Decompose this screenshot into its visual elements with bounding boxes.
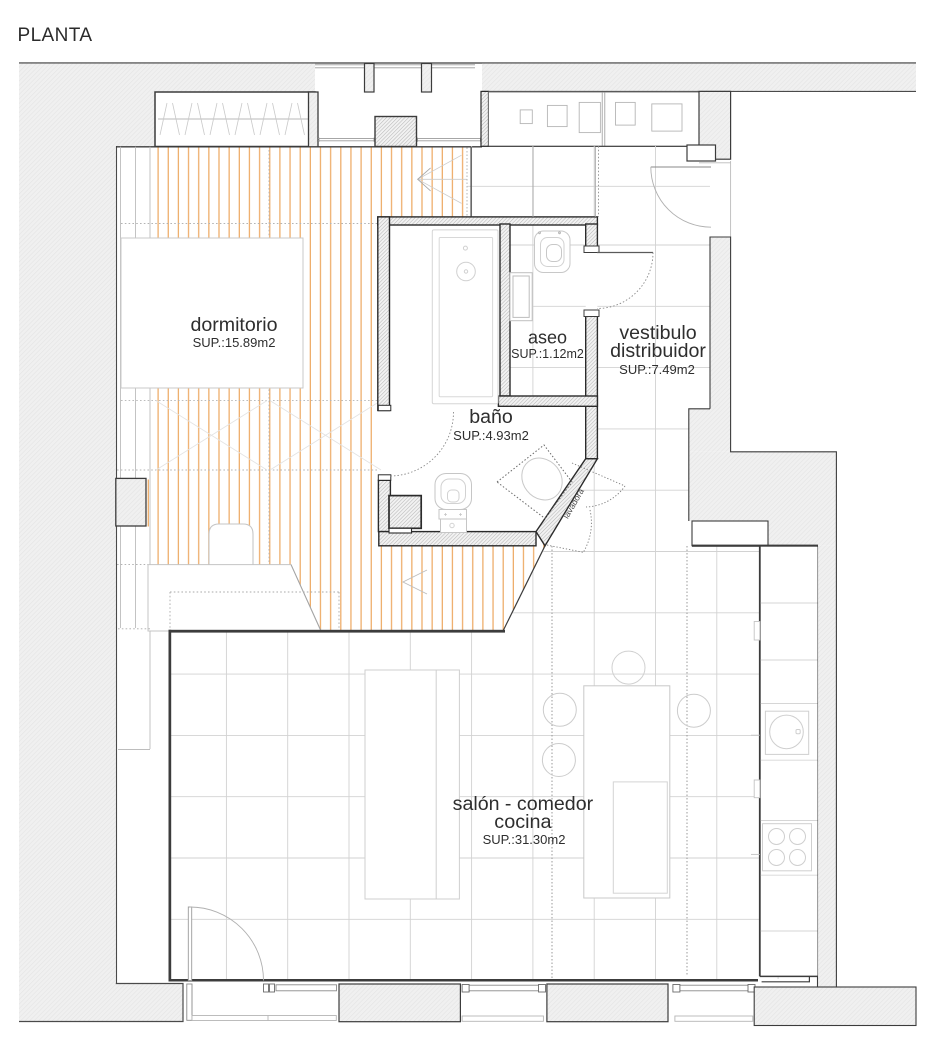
svg-text:SUP.:1.12m2: SUP.:1.12m2 <box>511 347 584 361</box>
svg-text:SUP.:4.93m2: SUP.:4.93m2 <box>453 428 529 443</box>
svg-text:distribuidor: distribuidor <box>610 340 706 362</box>
svg-text:dormitorio: dormitorio <box>190 314 277 336</box>
svg-text:cocina: cocina <box>494 811 551 833</box>
svg-text:baño: baño <box>469 406 513 428</box>
svg-text:aseo: aseo <box>528 328 567 348</box>
svg-text:SUP.:31.30m2: SUP.:31.30m2 <box>483 832 566 847</box>
svg-text:SUP.:7.49m2: SUP.:7.49m2 <box>619 362 695 377</box>
svg-text:SUP.:15.89m2: SUP.:15.89m2 <box>193 335 276 350</box>
svg-text:PLANTA: PLANTA <box>18 25 93 46</box>
